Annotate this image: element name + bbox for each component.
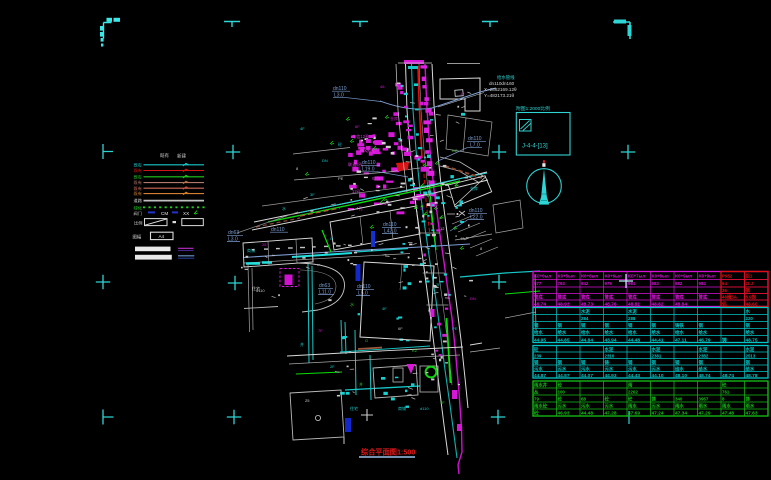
- svg-text:64: 64: [722, 281, 727, 286]
- svg-text:P982: P982: [722, 274, 733, 279]
- svg-text:钢: 钢: [699, 359, 704, 366]
- svg-text:KZ: KZ: [412, 348, 418, 353]
- svg-text:47.69: 47.69: [628, 411, 640, 417]
- svg-text:给水: 给水: [628, 329, 637, 336]
- svg-text:比例: 比例: [134, 220, 142, 227]
- svg-text:48.76: 48.76: [605, 301, 617, 307]
- svg-text:25: 25: [262, 242, 267, 247]
- svg-text:雨水: 雨水: [746, 403, 755, 410]
- svg-text:给水: 给水: [746, 329, 755, 336]
- svg-text:DN: DN: [322, 158, 328, 163]
- svg-text:6F: 6F: [355, 124, 360, 129]
- svg-text:阀门: 阀门: [134, 210, 142, 217]
- svg-text:管底: 管底: [605, 294, 614, 301]
- svg-text:284: 284: [581, 316, 589, 321]
- svg-text:6.9饱: 6.9饱: [746, 294, 757, 301]
- svg-text:K0+7ыл: K0+7ыл: [628, 274, 645, 279]
- svg-text:2F: 2F: [330, 364, 335, 369]
- svg-text:8: 8: [480, 246, 483, 251]
- svg-text:G: G: [330, 236, 333, 241]
- svg-text:雨水: 雨水: [628, 403, 637, 410]
- svg-text:44.84: 44.84: [581, 337, 593, 343]
- svg-text:2381: 2381: [652, 354, 662, 359]
- svg-text:K0+0ыл: K0+0ыл: [534, 274, 551, 279]
- svg-text:48.75: 48.75: [746, 337, 758, 343]
- svg-text:污水: 污水: [534, 366, 543, 373]
- svg-text:污水: 污水: [605, 403, 614, 410]
- svg-text:A4: A4: [159, 234, 165, 239]
- svg-text:44.10: 44.10: [652, 373, 664, 379]
- svg-text:钢: 钢: [628, 359, 633, 366]
- svg-text:给水: 给水: [605, 329, 614, 336]
- svg-text:铸: 铸: [605, 359, 610, 366]
- svg-text:PE: PE: [338, 176, 344, 181]
- svg-text:铸: 铸: [746, 396, 751, 403]
- svg-text:44.87: 44.87: [534, 373, 546, 379]
- svg-text:给水: 给水: [746, 366, 755, 373]
- svg-text:44.87: 44.87: [558, 373, 570, 379]
- svg-text:48.84: 48.84: [675, 301, 687, 307]
- svg-text:仓库: 仓库: [390, 115, 398, 121]
- svg-text:污水: 污水: [605, 366, 614, 373]
- svg-text:CM: CM: [161, 211, 168, 216]
- svg-text:46.79: 46.79: [699, 337, 711, 343]
- svg-text:给水: 给水: [558, 329, 567, 336]
- svg-text:44.95: 44.95: [534, 337, 546, 343]
- svg-text:给水: 给水: [675, 329, 684, 336]
- svg-text:钢: 钢: [581, 322, 586, 329]
- svg-text:d110: d110: [420, 406, 429, 411]
- svg-text:2513: 2513: [746, 354, 756, 359]
- svg-text:44.48: 44.48: [628, 337, 640, 343]
- svg-text:220: 220: [746, 316, 754, 321]
- svg-text:雨水砼: 雨水砼: [534, 403, 548, 410]
- svg-text:砼: 砼: [338, 141, 342, 147]
- svg-text:水: 水: [350, 301, 354, 307]
- svg-text:给水: 给水: [652, 329, 661, 336]
- svg-text:K0+6ыл: K0+6ыл: [581, 274, 598, 279]
- svg-text:J-4-4-[13]: J-4-4-[13]: [522, 144, 548, 150]
- svg-text:2310: 2310: [605, 354, 615, 359]
- svg-text:984: 984: [699, 281, 707, 286]
- svg-text:d110: d110: [256, 288, 265, 293]
- svg-text:793: 793: [558, 281, 566, 286]
- svg-text:钢: 钢: [534, 322, 539, 329]
- svg-text:48阀5A: 48阀5A: [722, 294, 738, 301]
- svg-text:PE: PE: [452, 326, 458, 331]
- svg-text:942: 942: [581, 281, 589, 286]
- svg-text:水泥: 水泥: [651, 346, 661, 353]
- svg-text:K0+5ыл: K0+5ыл: [558, 274, 575, 279]
- svg-text:钢: 钢: [628, 322, 633, 329]
- svg-text:12: 12: [440, 226, 445, 231]
- svg-text:44.41: 44.41: [652, 337, 664, 343]
- svg-text:3967: 3967: [699, 397, 709, 402]
- svg-text:48.78: 48.78: [746, 373, 758, 379]
- svg-text:既有: 既有: [160, 152, 169, 159]
- svg-text:管底: 管底: [699, 294, 708, 301]
- svg-text:住宅: 住宅: [350, 405, 358, 411]
- svg-text:761: 761: [722, 390, 730, 395]
- svg-text:水: 水: [282, 205, 286, 211]
- svg-text:管底: 管底: [628, 294, 637, 301]
- svg-text:水泥: 水泥: [745, 346, 755, 353]
- svg-text:47.34: 47.34: [675, 411, 687, 417]
- svg-text:7F: 7F: [318, 328, 323, 333]
- svg-text:8: 8: [722, 397, 725, 402]
- svg-text:综合平面图1:500: 综合平面图1:500: [361, 448, 415, 457]
- svg-text:污水: 污水: [558, 403, 567, 410]
- svg-text:管底: 管底: [558, 294, 567, 301]
- svg-text:Y=482173.21θ: Y=482173.21θ: [484, 93, 514, 98]
- svg-text:铸: 铸: [652, 396, 657, 403]
- svg-text:井: 井: [300, 341, 304, 347]
- svg-text:47.11: 47.11: [675, 337, 687, 343]
- svg-text:水泥: 水泥: [604, 346, 614, 353]
- svg-text:水: 水: [745, 308, 751, 315]
- svg-text:288: 288: [628, 316, 636, 321]
- svg-text:雨: 雨: [628, 382, 633, 389]
- svg-text:100: 100: [558, 390, 566, 395]
- svg-text:水泥: 水泥: [627, 308, 637, 315]
- svg-text:钢: 钢: [534, 359, 539, 366]
- svg-text:48.73: 48.73: [581, 301, 593, 307]
- svg-text:雨水: 雨水: [722, 403, 731, 410]
- svg-text:商铺: 商铺: [398, 405, 406, 411]
- svg-text:6F: 6F: [398, 326, 403, 331]
- svg-text:砼: 砼: [605, 396, 610, 403]
- svg-text:48.74: 48.74: [534, 301, 546, 307]
- svg-text:K0+9ыл: K0+9ыл: [675, 274, 692, 279]
- svg-text:2LJ: 2LJ: [746, 281, 754, 286]
- svg-text:丛: 丛: [534, 389, 539, 396]
- svg-text:47.29: 47.29: [699, 411, 711, 417]
- svg-text:新建: 新建: [177, 153, 186, 160]
- svg-text:dn110dn160: dn110dn160: [489, 81, 515, 86]
- svg-text:8: 8: [296, 166, 299, 171]
- svg-text:砼: 砼: [534, 410, 539, 417]
- svg-text:48.60: 48.60: [746, 301, 758, 307]
- svg-text:982: 982: [675, 281, 683, 286]
- svg-text:577: 577: [534, 281, 542, 286]
- svg-text:砼: 砼: [558, 396, 563, 403]
- svg-text:2202: 2202: [628, 390, 638, 395]
- svg-text:给水: 给水: [534, 329, 543, 336]
- svg-text:给水: 给水: [581, 329, 590, 336]
- svg-text:47.63: 47.63: [746, 411, 758, 417]
- svg-text:48.93: 48.93: [558, 301, 570, 307]
- svg-text:XX: XX: [183, 211, 189, 216]
- svg-text:管底: 管底: [534, 294, 543, 301]
- svg-text:25: 25: [305, 398, 310, 403]
- svg-text:雨水: 雨水: [699, 403, 708, 410]
- svg-text:K0+6ыл: K0+6ыл: [605, 274, 622, 279]
- svg-text:44.85: 44.85: [558, 337, 570, 343]
- svg-text:3F: 3F: [310, 192, 315, 197]
- svg-text:既有: 既有: [134, 167, 142, 174]
- svg-text:钢: 钢: [605, 322, 610, 329]
- svg-text:36: 36: [722, 288, 727, 293]
- svg-text:G: G: [365, 338, 368, 343]
- svg-text:983: 983: [652, 281, 660, 286]
- svg-text:48.10: 48.10: [675, 373, 687, 379]
- svg-text:铸: 铸: [722, 336, 727, 343]
- svg-text:44.07: 44.07: [581, 373, 593, 379]
- svg-text:DN: DN: [470, 296, 476, 301]
- svg-text:7F: 7F: [440, 400, 445, 405]
- svg-text:48.82: 48.82: [652, 301, 664, 307]
- svg-text:附图1:2000比例: 附图1:2000比例: [516, 105, 550, 112]
- svg-text:雨水: 雨水: [675, 403, 684, 410]
- svg-text:43.94: 43.94: [605, 337, 617, 343]
- svg-text:钢: 钢: [746, 322, 751, 329]
- svg-text:979: 979: [605, 281, 613, 286]
- svg-text:侣: 侣: [722, 300, 727, 307]
- svg-text:钢: 钢: [581, 359, 586, 366]
- svg-text:46.93: 46.93: [558, 411, 570, 417]
- svg-text:44.93: 44.93: [605, 373, 617, 379]
- svg-text:48.74: 48.74: [722, 373, 734, 379]
- svg-text:钢: 钢: [558, 359, 563, 366]
- svg-text:79: 79: [534, 397, 539, 402]
- svg-text:图幅: 图幅: [133, 233, 142, 240]
- svg-text:砼: 砼: [628, 396, 633, 403]
- svg-text:钢: 钢: [746, 287, 751, 294]
- svg-text:4F: 4F: [300, 126, 305, 131]
- svg-text:管底: 管底: [652, 294, 661, 301]
- svg-text:给水: 给水: [699, 329, 708, 336]
- svg-text:污水: 污水: [628, 366, 637, 373]
- svg-text:钢: 钢: [652, 359, 657, 366]
- svg-text:给水: 给水: [675, 366, 684, 373]
- svg-text:47.48: 47.48: [722, 411, 734, 417]
- svg-text:钢: 钢: [699, 322, 704, 329]
- svg-text:给水管线: 给水管线: [497, 74, 515, 81]
- svg-text:2382: 2382: [699, 354, 709, 359]
- svg-text:水泥: 水泥: [698, 346, 708, 353]
- svg-text:47.24: 47.24: [652, 411, 664, 417]
- svg-text:340: 340: [675, 397, 683, 402]
- svg-text:管底: 管底: [581, 294, 590, 301]
- svg-text:钢: 钢: [746, 359, 751, 366]
- svg-text:K0+8ыл: K0+8ыл: [652, 274, 669, 279]
- svg-text:既有: 既有: [134, 190, 142, 197]
- svg-text:污水: 污水: [652, 366, 661, 373]
- svg-text:污水: 污水: [581, 366, 590, 373]
- svg-text:污水: 污水: [558, 366, 567, 373]
- svg-text:47.28: 47.28: [605, 411, 617, 417]
- svg-text:污水: 污水: [581, 403, 590, 410]
- svg-text:44.43: 44.43: [628, 373, 640, 379]
- svg-text:仓库: 仓库: [470, 185, 478, 191]
- svg-text:铸铁: 铸铁: [675, 322, 684, 329]
- svg-text:12: 12: [460, 91, 465, 96]
- svg-text:239: 239: [534, 354, 542, 359]
- svg-text:给水: 给水: [699, 366, 708, 373]
- svg-text:井: 井: [359, 381, 363, 387]
- svg-text:4F: 4F: [382, 306, 387, 311]
- svg-text:44.48: 44.48: [581, 411, 593, 417]
- svg-text:砼: 砼: [722, 382, 727, 389]
- svg-text:砼: 砼: [558, 382, 563, 389]
- svg-text:48.74: 48.74: [699, 373, 711, 379]
- svg-text:钢: 钢: [558, 322, 563, 329]
- svg-text:68: 68: [581, 397, 586, 402]
- svg-text:981: 981: [628, 281, 636, 286]
- svg-text:46: 46: [380, 84, 385, 89]
- svg-text:雨水井: 雨水井: [534, 382, 548, 389]
- svg-text:污水: 污水: [652, 403, 661, 410]
- svg-text:电信: 电信: [372, 175, 380, 182]
- svg-text:钢: 钢: [675, 359, 680, 366]
- svg-text:48.81: 48.81: [628, 301, 640, 307]
- svg-text:道路: 道路: [134, 197, 143, 204]
- svg-text:K0+9ыл: K0+9ыл: [699, 274, 716, 279]
- svg-text:侣1: 侣1: [745, 273, 753, 280]
- svg-text:管底: 管底: [675, 294, 684, 301]
- svg-text:钢: 钢: [652, 322, 657, 329]
- svg-text:X=2862169.12θ: X=2862169.12θ: [484, 87, 517, 92]
- svg-text:水泥: 水泥: [580, 308, 590, 315]
- svg-text:砼: 砼: [534, 346, 539, 353]
